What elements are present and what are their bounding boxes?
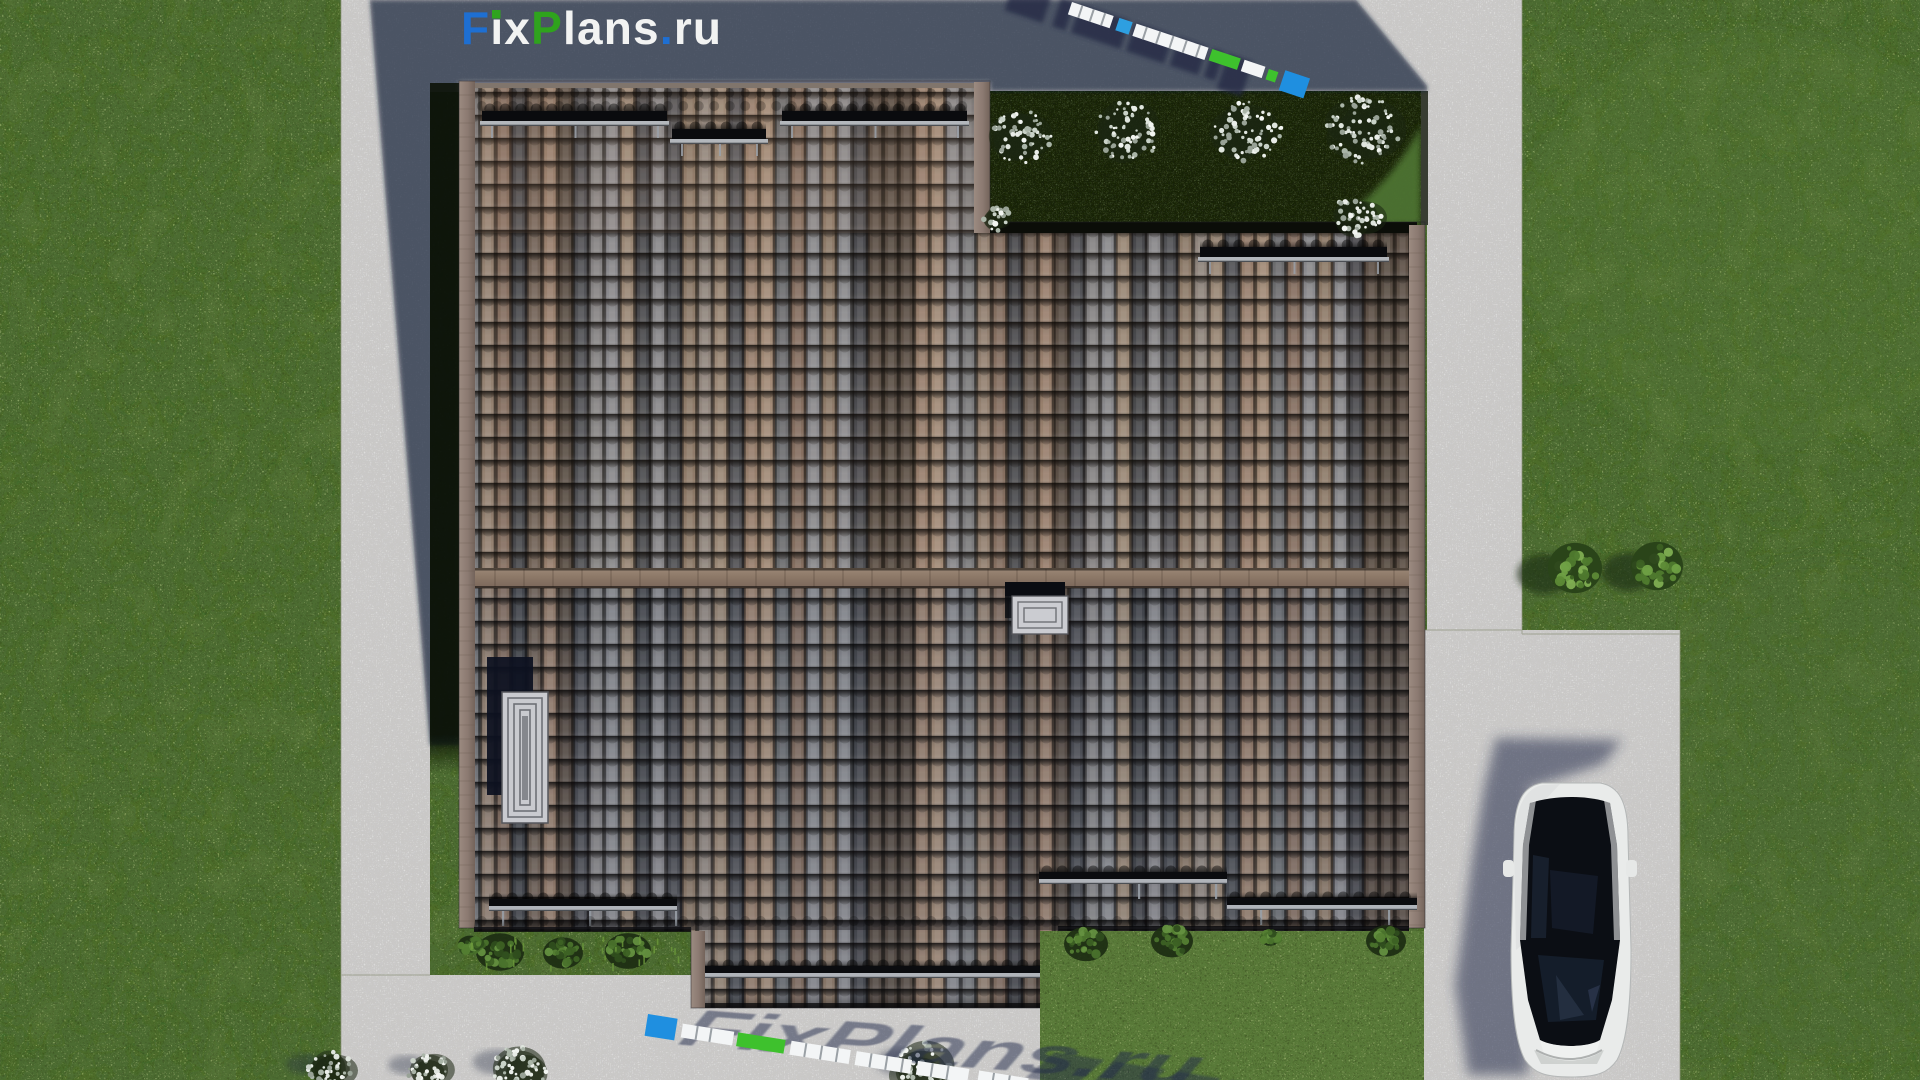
svg-text:FixPlans.ru: FixPlans.ru <box>461 2 722 54</box>
